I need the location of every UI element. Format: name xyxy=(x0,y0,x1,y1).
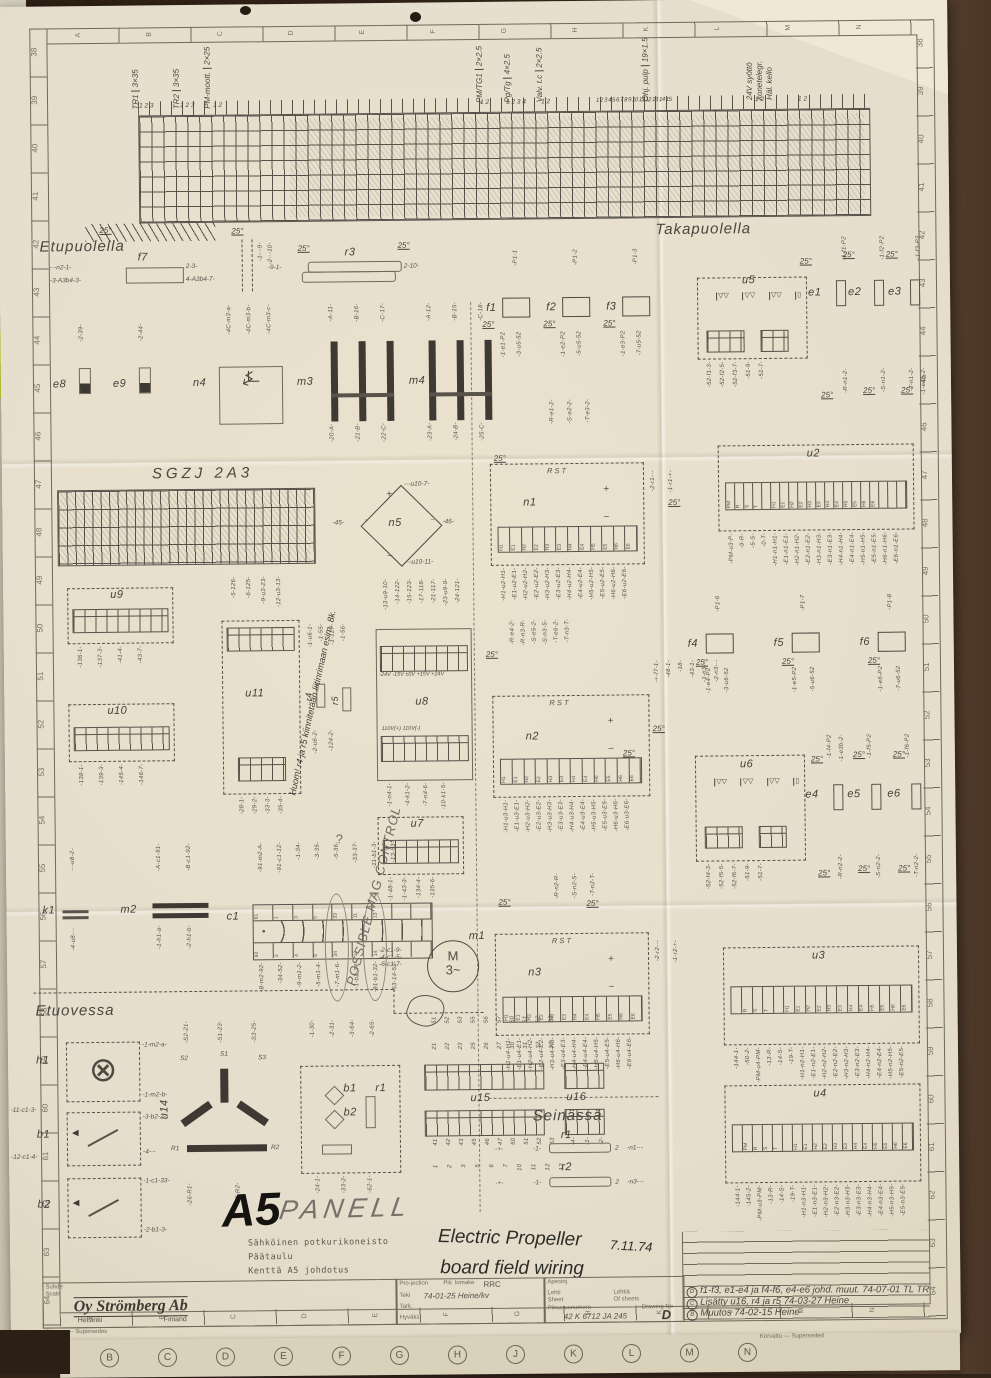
wire-label: -E1-n3-E1- xyxy=(812,1184,818,1216)
temp-note: 25° xyxy=(863,386,875,395)
terminal-number: 52 xyxy=(445,1016,451,1023)
terminal-cell: H5 xyxy=(595,997,607,1021)
wire-label: -33-2- xyxy=(341,1175,347,1193)
cable-label-valv: Valv. t.c2×2.5 xyxy=(534,47,544,102)
terminal-number: 22 xyxy=(445,1042,451,1049)
b1-arrow-icon: ◄ xyxy=(70,1127,81,1139)
m2-bar xyxy=(153,913,209,919)
u6-strip-right xyxy=(759,826,787,848)
wire-label: -29-2- xyxy=(252,796,258,814)
revision-row-b: B Muutos 74-02-15 Heine xyxy=(687,1307,800,1321)
ruler-number: 43 xyxy=(32,269,42,317)
terminal-cell: H2 xyxy=(522,527,534,551)
n1-plus: + xyxy=(603,484,609,495)
logo-city: Helsinki xyxy=(78,1317,103,1324)
wire-label: -26-R1- xyxy=(187,1183,193,1206)
u10-wires-bottom: -138-1--139-3--145-4--146-7- xyxy=(79,764,145,786)
n1-rst-wires: -R-e1-2--S-e2-2--T-e3-2- xyxy=(549,399,591,424)
ruler-number: 53 xyxy=(37,749,47,797)
wire-label: -1-30- xyxy=(310,1020,316,1038)
wire-label: -H1-u2-H1- xyxy=(501,568,507,601)
wire-label: -C-18- xyxy=(478,302,484,321)
terminal-cell: H4 xyxy=(825,482,834,508)
terminal-cell: E2 xyxy=(533,527,545,551)
cable-pins: 1 2 xyxy=(213,102,222,109)
e9-wire: -2-44- xyxy=(138,323,144,341)
n1-wires-bottom: -H1-u2-H1--E1-u2-E1--H2-u2-H2--E2-u2-E2-… xyxy=(501,566,628,600)
terminal-cell: E1 xyxy=(510,528,522,552)
wire-label: -E2-n1-E2- xyxy=(806,533,812,565)
wire-label: -35-4- xyxy=(278,796,284,814)
component-label-u9: u9 xyxy=(110,589,123,601)
contact-cell: 92 xyxy=(254,943,274,958)
r1-pre: -+- xyxy=(495,1146,503,1153)
f6-wire-top: -P1-8 xyxy=(887,594,893,610)
m3-bar xyxy=(359,341,367,421)
wire-label: -41-4- xyxy=(118,646,124,664)
b2-arrow-icon: ◄ xyxy=(70,1197,81,1209)
u2-box: u2 PMRSTH1E1H2E2H3E3H4E4H5E5H6E6 xyxy=(718,443,915,531)
component-label-f2: f2 xyxy=(546,301,556,313)
wire-label: -23-u9-9- xyxy=(443,578,449,605)
wire-label: -E6-n1-E6- xyxy=(894,532,900,564)
ruler-number: 53 xyxy=(923,739,933,787)
e4-body xyxy=(833,784,843,810)
wire-label: -19-T- xyxy=(789,1047,795,1065)
m4-bar xyxy=(457,340,465,420)
terminal-cell: E4 xyxy=(583,759,595,783)
sheet-index-letter: K xyxy=(564,1344,583,1363)
wire-label: -E5-u4-E5- xyxy=(605,1037,611,1069)
wire-label: -+-f7-1- xyxy=(654,660,660,682)
wire-label: -7-u6-52 xyxy=(896,666,902,691)
ruler-number: 50 xyxy=(35,605,45,653)
u14-pot-arm xyxy=(180,1101,212,1127)
m2-bar xyxy=(152,903,208,909)
terminal-cell: H2 xyxy=(813,1124,823,1150)
component-label-u14: u14 xyxy=(158,1099,170,1119)
wire-label: -9-u3-23- xyxy=(261,576,267,603)
f5-wire-top: -P1-7 xyxy=(800,595,806,611)
sheet-index-letter: H xyxy=(448,1345,467,1364)
u14-s2: S2 xyxy=(180,1055,188,1062)
terminal-cell: E6 xyxy=(901,985,912,1011)
terminal-cell: H6 xyxy=(618,758,630,782)
wire-label: -S-n3-S- xyxy=(542,619,548,644)
component-label-u2: u2 xyxy=(807,447,820,459)
b1-contact xyxy=(87,1129,118,1147)
wire-label: -52-f4-3- xyxy=(706,864,712,890)
ruler-number: 48 xyxy=(920,499,930,547)
drawing-sheet: 3839404142434445464748495051525354555657… xyxy=(0,0,961,1343)
terminal-cell: H1 xyxy=(501,760,513,784)
n2-rst-wires: -R-e4-2--R-n3-R--S-e5-2--S-n3-S--T-e6-2-… xyxy=(509,619,570,645)
f4-wires-bottom: -1-e4-P2-3-u6-52 xyxy=(706,667,730,693)
terminal-number: 55 xyxy=(471,1016,477,1023)
f1-wires-bottom: -1-e1-P2-3-u5-52 xyxy=(500,332,522,358)
wire-label: -4C-m3-a- xyxy=(226,305,232,335)
e5-wire-bottom: -S-n2-2- xyxy=(876,854,882,878)
terminal-cell: S xyxy=(744,483,753,509)
wire-label: -62-1- xyxy=(367,1175,373,1193)
cable-pins: 1 2 3 4 5 6 7 8 9 10 11 12 13 14 15 xyxy=(596,97,672,104)
wire-label: -T-n3-T- xyxy=(564,619,570,642)
wire-label: -H5-u2-H5- xyxy=(589,567,595,600)
u7-wires-bottom: -1-48-1--1-43-3--134-4--135-6- xyxy=(388,876,436,900)
ruler-number: 58 xyxy=(925,979,935,1027)
grid-writing-texture xyxy=(289,113,865,217)
wire-label: -E2-n3-E2- xyxy=(834,1184,840,1216)
u11-strip-bottom xyxy=(238,757,286,782)
field-piirustusnumero: Piirustusnumero xyxy=(548,1305,591,1311)
component-label-u3: u3 xyxy=(812,949,825,961)
ruler-number: 54 xyxy=(923,787,933,835)
wire-label: -H3-u3-H3- xyxy=(547,799,553,832)
wire-label: -10-k1-5- xyxy=(441,782,447,809)
wire-label: -PM-u3-PM- xyxy=(757,1185,763,1221)
terminal-cell: H6 xyxy=(893,1124,903,1150)
cable-label-pgtg: Pg/Tg4×2.5 xyxy=(503,54,513,103)
n5-plus: + xyxy=(386,489,392,500)
terminal-cell: E1 xyxy=(780,483,789,509)
u14-r2: R2 xyxy=(271,1144,279,1151)
wire-label: -4C-m3-c- xyxy=(266,304,272,334)
value-teki: 74-01-25 Heine/kv xyxy=(424,1291,489,1301)
terminal-cell: E6 xyxy=(870,482,879,508)
wire-label: -5-m1-4- xyxy=(316,962,322,987)
u6-bridge: ▽▽▽▽▽▽▯ xyxy=(704,778,810,787)
component-label-b2: b2 xyxy=(38,1199,51,1211)
component-label-r5: r5 xyxy=(330,696,340,705)
wire-label: -14-S- xyxy=(778,1047,784,1066)
e1-body xyxy=(836,280,846,306)
ruler-number: 63 xyxy=(42,1229,52,1277)
component-label-n2: n2 xyxy=(526,730,539,742)
wire-label: -H2-n3-H2- xyxy=(823,1184,829,1217)
sheet-index-letter: E xyxy=(274,1347,293,1366)
contact-cell: 4 xyxy=(293,943,313,958)
typed-title-line1: Sähköinen potkurikoneisto xyxy=(248,1237,389,1248)
wire-label: -18- xyxy=(678,660,684,672)
temp-note: 25° xyxy=(398,241,410,250)
u6-box: u6 ▽▽▽▽▽▽▯ xyxy=(695,755,806,862)
contact-cell: 1 xyxy=(273,905,293,920)
terminal-number: 11 xyxy=(531,1163,537,1170)
wire-label: -1-e2-P2 xyxy=(560,331,566,357)
terminal-cell: S xyxy=(753,987,764,1013)
typed-title-line2: Päätaulu xyxy=(248,1252,293,1262)
wire-label: -E5-u2-E5- xyxy=(600,567,606,599)
field-ofsheets: Of sheets xyxy=(614,1296,640,1302)
component-label-c1: c1 xyxy=(227,911,240,923)
wire-label: -22-C- xyxy=(381,423,387,442)
section-etupuolella: Etupuolella xyxy=(39,238,124,256)
u15-strip-top xyxy=(424,1063,544,1090)
wire-label: -2-h1-b- xyxy=(187,925,193,949)
wire-label: -2-·-10- xyxy=(268,242,274,264)
mini-r1-body xyxy=(365,1096,375,1128)
terminal-cell: H4 xyxy=(571,759,583,783)
terminal-cell: H3 xyxy=(833,1124,843,1150)
r2-body xyxy=(549,1177,611,1188)
temp-note: 25° xyxy=(543,319,555,328)
e6-wire-bottom: -T-n2-2- xyxy=(914,853,920,877)
n2-minus: − xyxy=(608,744,614,755)
wire-label: -E2-u2-E2- xyxy=(534,567,540,599)
k1-plate xyxy=(63,916,89,919)
u15-numbers-top2: 51525355565760616263 xyxy=(432,1015,555,1024)
n4-wires: -4C-m3-a--4C-m3-b--4C-m3-c- xyxy=(226,304,272,335)
pencil-question-mark: ? xyxy=(336,831,343,846)
mini-b1-body xyxy=(325,1086,345,1106)
component-label-f6: f6 xyxy=(860,636,870,648)
component-label-f5: f5 xyxy=(774,637,784,649)
ruler-number: 51 xyxy=(922,643,932,691)
component-label-h1: h1 xyxy=(36,1055,49,1067)
wire-label: -H6-u2-H6- xyxy=(611,567,617,600)
wire-label: -1-34- xyxy=(296,842,302,860)
wire-label: -33-3- xyxy=(265,796,271,814)
terminal-cell: H1 xyxy=(771,483,780,509)
e2-wire-bottom: -S-n1-2- xyxy=(881,368,887,392)
wire-label: -124-2- xyxy=(329,730,335,752)
terminal-cell: H6 xyxy=(890,986,901,1012)
wire-label: -0-T- xyxy=(762,533,768,547)
terminal-number: 47 xyxy=(498,1138,504,1145)
wire-label: -135-6- xyxy=(430,876,436,898)
handwritten-a5: A5 xyxy=(220,1181,281,1238)
u9-strip xyxy=(72,608,168,633)
terminal-number: 51 xyxy=(524,1137,530,1144)
terminal-cell: T xyxy=(763,987,774,1013)
m3-bar xyxy=(387,341,395,421)
e5-body xyxy=(871,784,881,810)
terminal-cell: H3 xyxy=(807,482,816,508)
wire-label: -9-m1-2- xyxy=(297,962,303,987)
m2-wires-bottom: -1-h1-a--2-h1-b- xyxy=(157,925,193,949)
n5-wire-top: -·-u10-7- xyxy=(404,481,429,488)
u8-voltages: -24V -15V ±0V +15V +24V xyxy=(379,671,444,678)
wire-label: -H5-n3-H5- xyxy=(889,1184,895,1217)
wire-label: -28-1- xyxy=(239,796,245,814)
n5-wire-bottom: -·-u10-11- xyxy=(405,558,433,565)
mini-wires-bottom: -24-1--33-2--62-1- xyxy=(315,1175,373,1193)
wire-label: -52-f1-3- xyxy=(707,362,713,388)
sheet-index-letter: D xyxy=(216,1347,235,1366)
k1-wire-top: -·-u8-2- xyxy=(70,848,76,870)
u8-strip-bottom xyxy=(381,735,469,762)
wire-label: -E5-n1-E5- xyxy=(872,532,878,564)
terminal-number: 51 xyxy=(432,1016,438,1023)
ruler-number: 41 xyxy=(917,163,927,211)
m4-bar xyxy=(485,340,493,420)
wire-label: -PM-u4-PM- xyxy=(756,1047,762,1083)
terminal-number: 41 xyxy=(433,1138,439,1145)
ruler-number: 47 xyxy=(34,461,44,509)
ruler-letter: C xyxy=(216,19,231,43)
r45-wires-bottom: -2-u6-2--124-2- xyxy=(313,730,335,754)
field-projection: Pro-jection xyxy=(399,1281,429,1287)
ruler-number: 48 xyxy=(34,509,44,557)
wire-label: -B-m2-92- xyxy=(259,962,265,992)
u4-wires-bottom: -144-1--145-2--PM-u3-PM--13-R--14-S--19-… xyxy=(735,1184,906,1221)
component-label-k1: k1 xyxy=(42,904,55,916)
terminal-cell: E4 xyxy=(858,986,869,1012)
temp-note: 25° xyxy=(231,226,243,235)
u14-r1: R1 xyxy=(171,1145,179,1152)
wire-label: -H2-n2-H2- xyxy=(822,1046,828,1079)
ruler-number: 47 xyxy=(920,451,930,499)
wire-label: -B-c1-92- xyxy=(186,843,192,871)
wire-label: -A-c1-91- xyxy=(156,843,162,871)
terminal-cell: H5 xyxy=(873,1124,883,1150)
k1-wire-bottom: -4-u8-·- xyxy=(71,928,77,950)
ruler-number: 45 xyxy=(33,365,43,413)
wire-label: -52-f2-5- xyxy=(720,361,726,387)
wire-label: -2-65- xyxy=(370,1019,376,1037)
ruler-number: 40 xyxy=(916,115,926,163)
field-hyvaks: Hyväks. xyxy=(400,1315,421,1321)
terminal-number: 26 xyxy=(484,1042,490,1049)
wire-label: -S3-25- xyxy=(252,1020,258,1042)
component-label-m1: m1 xyxy=(469,930,485,942)
u4-box: u4 PMRSTH1E1H2E2H3E3H4E4H5E5H6E6 xyxy=(724,1083,921,1183)
terminal-number: 50 xyxy=(511,1138,517,1145)
terminal-cell: H3 xyxy=(548,759,560,783)
wire-label: -T-n2-T- xyxy=(590,873,596,896)
ruler-number: 60 xyxy=(40,1085,50,1133)
cable-label-konetelegr: konetelegr. xyxy=(755,61,764,100)
mini-r1-label: r1 xyxy=(375,1082,386,1094)
terminal-cell xyxy=(783,1125,793,1151)
sgzj-title: SGZJ 2A3 xyxy=(152,464,253,482)
wire-label: -R-e4-2- xyxy=(509,620,515,645)
wire-label: -H3-u2-H3- xyxy=(545,567,551,600)
n2-box: R S T n2 + − H1E1H2E2H3E3H4E4H5E5H6E6 xyxy=(492,694,650,798)
field-lehti: Lehti xyxy=(547,1290,560,1296)
terminal-number: 33 xyxy=(549,1041,555,1048)
temp-note: 25° xyxy=(668,498,680,507)
wire-label: -145-2- xyxy=(746,1185,752,1207)
terminal-cell: H1 xyxy=(784,987,795,1013)
terminal-cell: E3 xyxy=(561,997,573,1021)
n3-wires-right: -2-r2-·--1-r2-+- xyxy=(655,940,679,963)
contact-cell xyxy=(392,904,412,919)
f5-wires-bottom: -1-e5-P2-5-u6-52 xyxy=(792,666,816,692)
n5-wire-right: -46- xyxy=(442,518,454,525)
wire-label: -H3-n1-H3- xyxy=(817,532,823,565)
f2-body xyxy=(562,297,590,317)
ruler-number: 61 xyxy=(927,1123,937,1171)
n3-rst-wires: -R-n2-R--S-n2-S--T-n2-T- xyxy=(554,873,596,899)
ruler-number: 40 xyxy=(30,125,40,173)
tb-divider xyxy=(395,1279,397,1325)
u11-strip-top xyxy=(227,627,295,652)
wire-label: -48-1- xyxy=(666,660,672,678)
mini-b2-label: b2 xyxy=(344,1106,357,1118)
wire-label: -24-121- xyxy=(455,578,461,603)
terminal-cell: H6 xyxy=(861,482,870,508)
wire-label: -144-1- xyxy=(735,1185,741,1207)
terminal-cell: R xyxy=(742,987,753,1013)
u14-pot-arm xyxy=(236,1100,269,1126)
terminal-cell: H4 xyxy=(568,527,580,551)
wire-label: -136-1- xyxy=(78,646,84,668)
n5-ac2: ~ xyxy=(430,516,434,523)
wire-label: -4C-m3-b- xyxy=(246,304,252,334)
u3-strip: RSTH1E1H2E2H3E3H4E4H5E5H6E6 xyxy=(730,984,912,1014)
under-sheet: BCDEFGHJKLMN Korvattu — Superseded xyxy=(60,1332,960,1378)
wire-label: -3-64- xyxy=(350,1019,356,1037)
ruler-number: 39 xyxy=(916,67,926,115)
terminal-cell xyxy=(888,482,897,508)
wire-label: -50-2- xyxy=(745,1047,751,1065)
component-label-e9: e9 xyxy=(113,378,126,390)
component-label-u7: u7 xyxy=(411,818,424,830)
wire-label: -1-f5-P2 xyxy=(867,734,873,758)
u14-resistor xyxy=(187,1144,267,1152)
m4-wires-top: -A-12--B-15--C-18- xyxy=(426,302,484,321)
contact-cell: 3 xyxy=(293,905,313,920)
stromberg-logo: Oy Strömberg Ab xyxy=(74,1296,188,1317)
wire-label: -H1-n3-H1- xyxy=(801,1185,807,1218)
temp-note: 25° xyxy=(818,868,830,877)
section-seinassa: Seinässä xyxy=(533,1107,603,1125)
temp-note: 25° xyxy=(858,864,870,873)
wire-label: -144-1- xyxy=(734,1047,740,1069)
terminal-number: 52 xyxy=(537,1137,543,1144)
wire-label: -51-9- xyxy=(746,361,752,379)
wire-label: -6-125- xyxy=(246,576,252,598)
wire-label: -E1-u3-E1- xyxy=(514,800,520,832)
e9-body xyxy=(139,367,151,393)
n1-rst: R S T xyxy=(547,466,566,475)
section-etuovessa: Etuovessa xyxy=(35,1002,114,1020)
u5-strip-right xyxy=(760,330,788,352)
u5-strip-left xyxy=(706,330,744,352)
field-lehtia: Lehtiä xyxy=(613,1289,629,1295)
u16-strip-top xyxy=(564,1063,604,1089)
temp-note: 25° xyxy=(811,754,823,763)
temp-note: 25° xyxy=(893,750,905,759)
terminal-cell: E2 xyxy=(823,1124,833,1150)
korvattu-label: Korvattu — Superseded xyxy=(760,1333,824,1340)
f6-wires-bottom: -1-e6-P2-7-u6-52 xyxy=(878,666,902,692)
e3-wire-top: -1-f3-P2 xyxy=(915,235,921,259)
r5-body xyxy=(342,687,351,711)
temp-note: 25° xyxy=(653,724,665,733)
h1-box: ⊗ xyxy=(66,1042,141,1103)
u15-numbers-bot2: 12356710111213 xyxy=(433,1163,565,1172)
scanned-drawing-scene: 3c 3839404142434445464748495051525354555… xyxy=(0,0,991,1374)
n1-wires-right: -2-r1-·--1-r1-+- xyxy=(650,470,674,493)
terminal-number: 53 xyxy=(458,1016,464,1023)
f7-vertical-wires: -1-·-9--2-·-10- xyxy=(258,242,274,265)
wire-label: -E4-n3-E4- xyxy=(878,1184,884,1216)
wire-label: -R-n3-R- xyxy=(520,620,526,646)
wire-label: -1-f6-P2 xyxy=(905,733,911,757)
wire-label: -H1-n1-H1- xyxy=(773,533,779,566)
wire-label: -E1-n2-E1- xyxy=(811,1046,817,1078)
terminal-cell: E1 xyxy=(795,987,806,1013)
punch-hole xyxy=(240,6,251,15)
wire-label: -H4-u3-H4- xyxy=(569,799,575,832)
terminal-cell: T xyxy=(773,1125,783,1151)
wire-label: -H2-u2-H2- xyxy=(523,567,529,600)
mini-contact xyxy=(322,1144,352,1154)
f1-body xyxy=(502,297,530,317)
value-revision-letter: D xyxy=(662,1307,672,1322)
